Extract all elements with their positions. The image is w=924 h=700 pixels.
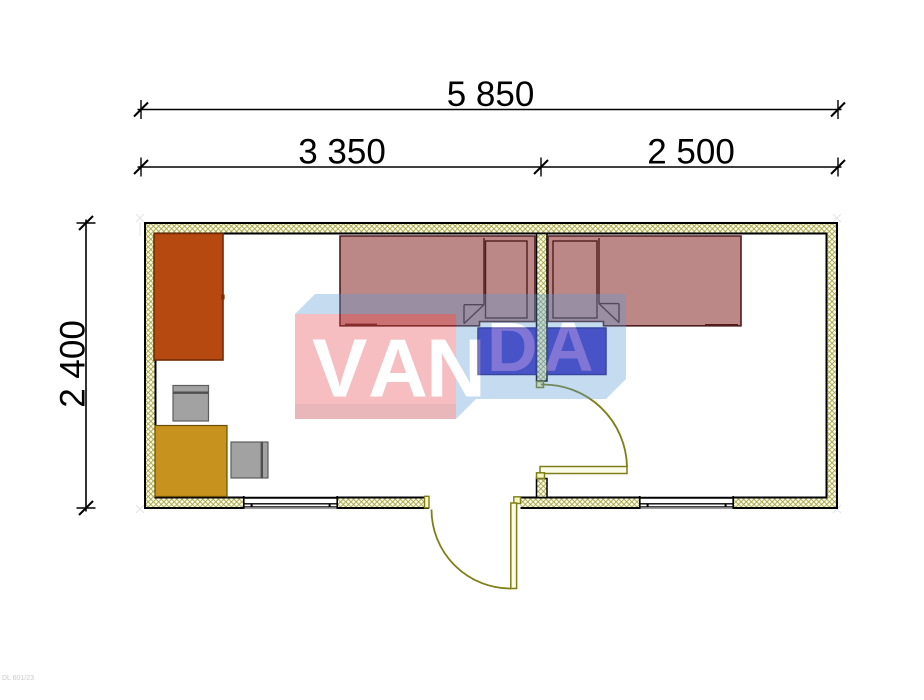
svg-text:5 850: 5 850 [447, 75, 535, 114]
svg-text:2 400: 2 400 [54, 320, 93, 408]
svg-text:2 500: 2 500 [647, 133, 735, 172]
svg-text:3 350: 3 350 [298, 133, 386, 172]
svg-text:DL 601/23: DL 601/23 [2, 675, 34, 682]
svg-text:VAN: VAN [312, 322, 486, 415]
